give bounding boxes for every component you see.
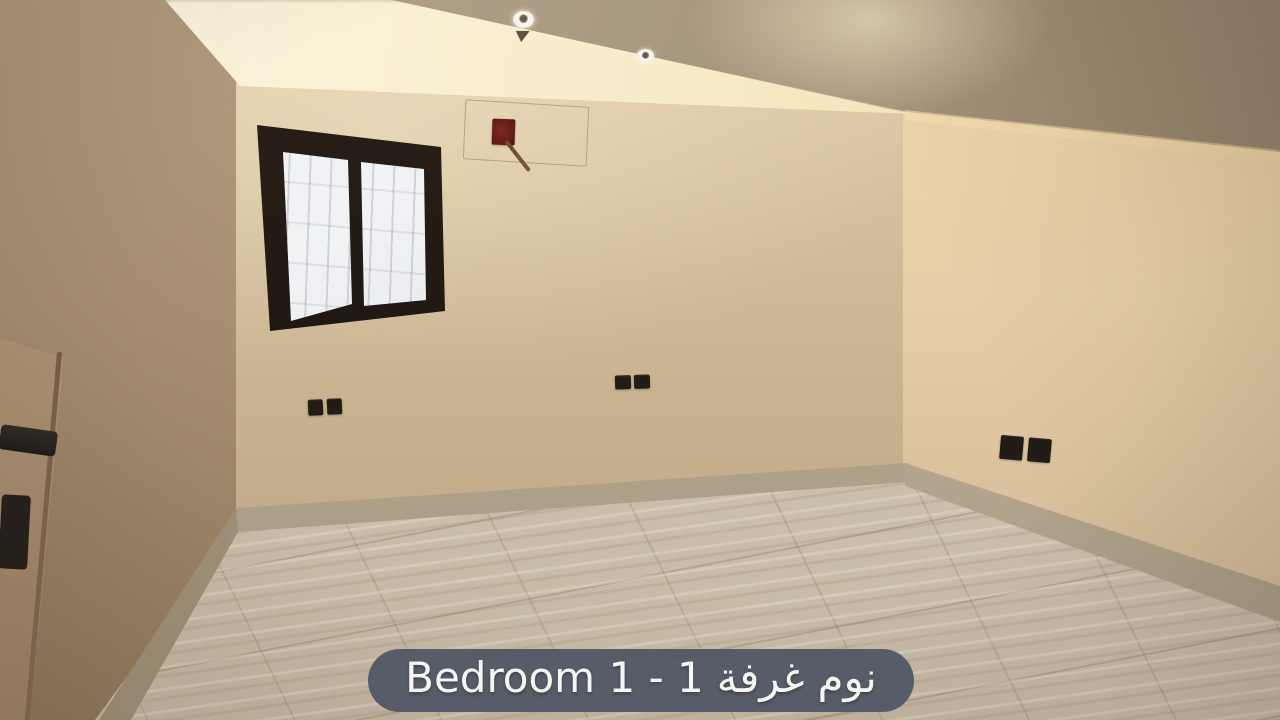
switch-plate <box>308 399 324 416</box>
outlet-plate <box>1027 437 1052 463</box>
double-switch-back-wall <box>308 398 343 416</box>
caption-arabic-word-2: نوم <box>817 657 876 699</box>
recessed-downlight <box>637 49 654 63</box>
door-lock <box>0 494 31 569</box>
pencil-patch-outline <box>463 99 589 167</box>
double-outlet-right-wall <box>999 435 1052 463</box>
outlet-plate <box>615 375 631 390</box>
outlet-plate <box>634 374 650 389</box>
recessed-downlight <box>513 11 534 28</box>
double-outlet-back-wall <box>615 374 650 389</box>
caption-latin: Bedroom 1 - 1 <box>405 657 704 699</box>
bedroom-photo: Bedroom 1 - 1 غرفة نوم <box>0 0 1280 720</box>
switch-plate <box>327 398 343 415</box>
red-junction-box <box>492 119 516 146</box>
room-label-pill: Bedroom 1 - 1 غرفة نوم <box>368 649 914 712</box>
outlet-plate <box>999 435 1024 461</box>
caption-arabic-word-1: غرفة <box>717 657 805 699</box>
